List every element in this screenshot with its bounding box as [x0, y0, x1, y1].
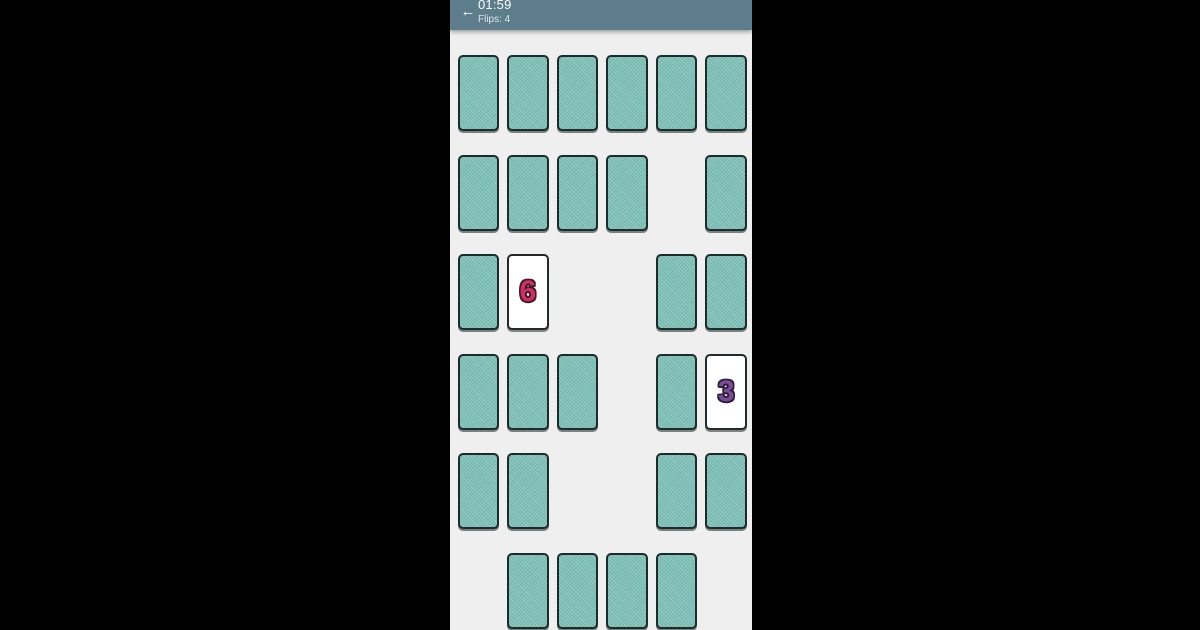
card-face-down[interactable]: [705, 254, 747, 330]
card-face-down[interactable]: [557, 354, 599, 430]
card-face-down[interactable]: [557, 155, 599, 231]
card-face-down[interactable]: [458, 453, 500, 529]
empty-cell: [606, 254, 648, 330]
empty-cell: [458, 553, 500, 629]
flips-counter: Flips: 4: [478, 13, 510, 26]
card-value: 6: [520, 277, 537, 307]
card-face-down[interactable]: [606, 553, 648, 629]
card-face-down[interactable]: [606, 55, 648, 131]
top-app-bar: ← 01:59 Flips: 4: [450, 0, 752, 30]
card-face-down[interactable]: [507, 55, 549, 131]
card-face-down[interactable]: [557, 55, 599, 131]
card-face-down[interactable]: [458, 354, 500, 430]
card-face-down[interactable]: [705, 155, 747, 231]
card-face-down[interactable]: [705, 55, 747, 131]
card-face-down[interactable]: [507, 354, 549, 430]
card-face-down[interactable]: [557, 553, 599, 629]
card-face-down[interactable]: [606, 155, 648, 231]
card-face-down[interactable]: [705, 453, 747, 529]
card-face-down[interactable]: [507, 453, 549, 529]
back-arrow-icon[interactable]: ←: [459, 3, 477, 21]
card-face-down[interactable]: [656, 55, 698, 131]
card-face-down[interactable]: [656, 453, 698, 529]
card-face-down[interactable]: [656, 354, 698, 430]
empty-cell: [705, 553, 747, 629]
timer-label: 01:59: [478, 0, 512, 12]
card-face-up[interactable]: 6: [507, 254, 549, 330]
card-face-down[interactable]: [458, 55, 500, 131]
card-face-down[interactable]: [507, 155, 549, 231]
game-screen: ← 01:59 Flips: 4 63: [450, 0, 752, 630]
empty-cell: [606, 453, 648, 529]
card-face-down[interactable]: [458, 155, 500, 231]
empty-cell: [656, 155, 698, 231]
card-face-down[interactable]: [656, 553, 698, 629]
card-value: 3: [718, 377, 735, 407]
empty-cell: [557, 453, 599, 529]
card-face-down[interactable]: [507, 553, 549, 629]
card-face-down[interactable]: [656, 254, 698, 330]
empty-cell: [557, 254, 599, 330]
card-face-down[interactable]: [458, 254, 500, 330]
card-face-up[interactable]: 3: [705, 354, 747, 430]
board: 63: [450, 30, 752, 630]
empty-cell: [606, 354, 648, 430]
